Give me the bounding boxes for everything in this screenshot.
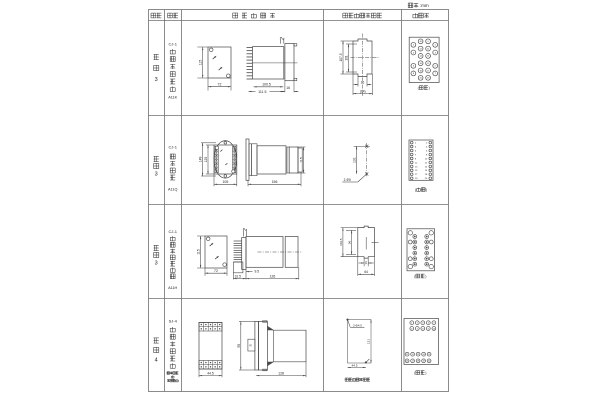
svg-text:): ) <box>425 274 426 278</box>
svg-text:A11K: A11K <box>168 96 177 100</box>
svg-text:156: 156 <box>272 180 278 184</box>
svg-text:16: 16 <box>364 261 368 265</box>
svg-text:A11Q: A11Q <box>168 188 177 192</box>
svg-text:72: 72 <box>218 83 222 87</box>
svg-text:105: 105 <box>222 180 228 184</box>
svg-text:149: 149 <box>199 156 203 162</box>
svg-text:(64): (64) <box>360 90 366 94</box>
svg-text::mm: :mm <box>420 3 429 8</box>
svg-text:3: 3 <box>155 261 158 267</box>
svg-text:): ) <box>426 188 427 192</box>
svg-text:3: 3 <box>155 77 158 83</box>
svg-text:72: 72 <box>214 269 218 273</box>
svg-text:107.5: 107.5 <box>339 53 343 61</box>
svg-text:2-Φ4.5: 2-Φ4.5 <box>353 323 362 327</box>
svg-text:SJ-4: SJ-4 <box>169 319 178 324</box>
svg-text:111.5: 111.5 <box>258 90 266 94</box>
svg-text:44.5: 44.5 <box>351 363 357 367</box>
svg-text:CJ-1: CJ-1 <box>168 229 177 234</box>
svg-text:64: 64 <box>364 270 368 274</box>
svg-text:95: 95 <box>237 344 241 348</box>
svg-text:125: 125 <box>204 157 208 163</box>
svg-text:16: 16 <box>361 80 365 84</box>
svg-text:): ) <box>425 371 426 375</box>
svg-text:44.5: 44.5 <box>207 371 214 375</box>
svg-text:16: 16 <box>286 86 290 90</box>
svg-text:2-Φ5: 2-Φ5 <box>344 178 351 182</box>
svg-text:101: 101 <box>345 55 349 61</box>
svg-text:131: 131 <box>353 157 357 163</box>
svg-text:CJ-1: CJ-1 <box>168 42 177 47</box>
svg-text:121: 121 <box>366 339 370 344</box>
svg-text:96: 96 <box>348 240 352 244</box>
svg-text:100.5: 100.5 <box>262 83 271 87</box>
svg-text:126: 126 <box>270 275 276 279</box>
svg-text:A11H: A11H <box>168 286 177 290</box>
svg-text:): ) <box>429 86 430 90</box>
svg-text:31.5: 31.5 <box>235 275 242 279</box>
svg-text:9.5: 9.5 <box>255 270 260 274</box>
svg-text:CJ-1: CJ-1 <box>168 145 177 150</box>
svg-text:128: 128 <box>278 371 284 375</box>
svg-text:103.5: 103.5 <box>339 238 343 246</box>
svg-text:4: 4 <box>155 358 158 364</box>
svg-text:115: 115 <box>199 60 203 66</box>
svg-text:3: 3 <box>155 172 158 178</box>
svg-text:115: 115 <box>300 157 304 163</box>
svg-text:115: 115 <box>197 249 201 255</box>
